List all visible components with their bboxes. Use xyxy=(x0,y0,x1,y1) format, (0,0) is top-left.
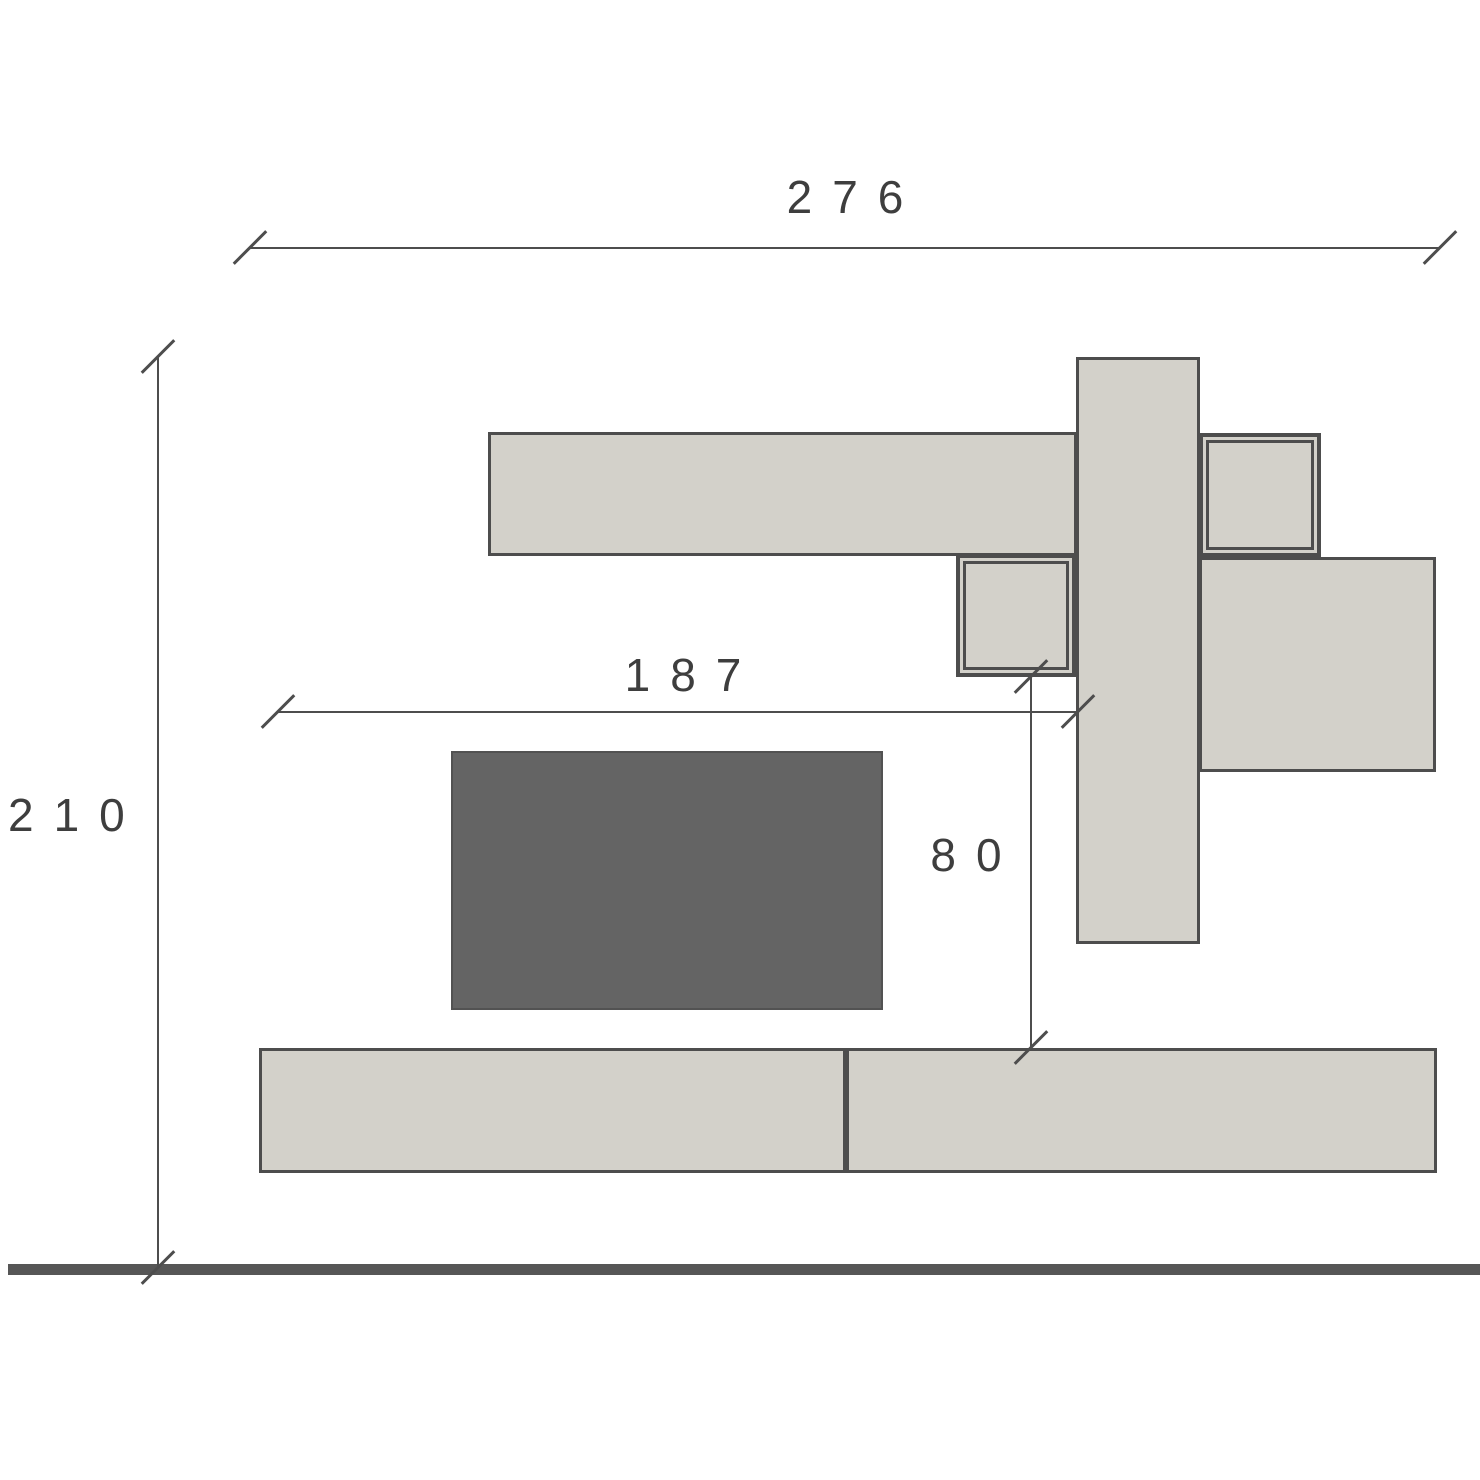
base-cabinet-right-module xyxy=(846,1048,1437,1173)
dim-label-total-height: 210 xyxy=(8,792,145,838)
floor-line xyxy=(8,1264,1480,1275)
right-storage-box xyxy=(1199,557,1436,772)
top-shelf xyxy=(488,432,1077,556)
dim-line-inner-width xyxy=(278,711,1078,713)
dim-label-inner-width: 187 xyxy=(625,652,762,698)
dim-label-gap-height: 80 xyxy=(930,832,1021,878)
dim-line-total-height xyxy=(157,357,159,1268)
dim-line-total-width xyxy=(250,247,1440,249)
dim-line-gap-height xyxy=(1030,677,1032,1048)
tv-screen xyxy=(451,751,883,1010)
technical-drawing-canvas: 276 210 187 80 xyxy=(0,0,1480,1480)
base-cabinet-left-module xyxy=(259,1048,846,1173)
tall-side-panel xyxy=(1076,357,1200,944)
dim-label-total-width: 276 xyxy=(787,174,924,220)
middle-hanging-cube xyxy=(956,554,1076,677)
upper-right-cube xyxy=(1199,433,1321,557)
